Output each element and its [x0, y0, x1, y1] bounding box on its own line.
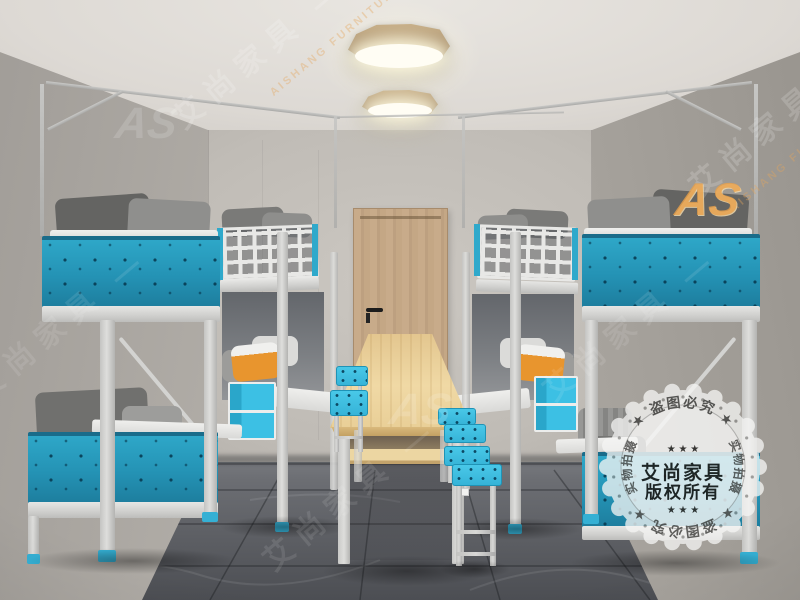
bed-post [510, 232, 521, 528]
ceiling-light-large [348, 24, 450, 70]
bed-post [277, 232, 288, 526]
door-handle [366, 308, 383, 312]
stool-stretcher [456, 552, 496, 556]
canopy-post [334, 116, 337, 228]
stool-stretcher [334, 436, 363, 439]
stool-seat [452, 464, 502, 486]
bed-post [585, 320, 598, 518]
guardrail-lattice [477, 224, 577, 281]
stamp-copyright: 版权所有 [645, 482, 721, 502]
bed-foot-cap [202, 512, 218, 522]
door-groove [360, 216, 441, 219]
guardrail-accent [572, 228, 578, 280]
guardrail-accent [474, 224, 480, 276]
table-leg [338, 436, 350, 564]
stool-label [461, 488, 469, 496]
dormitory-render: 艾尚家具 — AISHANG FURNITURE 艾尚家具 — AISHANG … [0, 0, 800, 600]
bedside-cabinet [534, 376, 578, 432]
bunk-rail [582, 306, 760, 322]
stool-stretcher [456, 530, 496, 534]
stool-seat [444, 424, 486, 443]
stool-leg [334, 416, 339, 452]
bunk-rail [42, 306, 220, 322]
bed-post [204, 320, 217, 516]
guardrail-accent [312, 224, 318, 276]
bunk-rail [28, 502, 218, 518]
bed-shadow [570, 550, 780, 576]
canopy-post [462, 116, 465, 228]
lower-bunk-panel [28, 432, 218, 504]
canopy-post [754, 84, 758, 236]
stool-shadow [440, 560, 510, 578]
canopy-post [40, 84, 44, 236]
bed-foot-cap [583, 514, 599, 524]
pillow-orange [230, 342, 282, 383]
stool-seat [336, 366, 368, 386]
upper-bunk-panel [582, 234, 760, 308]
bed-post [100, 320, 115, 554]
stool-seat [444, 446, 490, 466]
under-table-shade [349, 464, 453, 560]
stamp-stars-bottom: ★ ★ ★ [667, 505, 699, 516]
stamp-stars-top: ★ ★ ★ [667, 444, 699, 455]
door-lock-plate [366, 313, 370, 323]
copyright-stamp: ★ 盗图必究 ★ ★ 盗图必究 ★ 实物拍摄 实物拍摄 ★ ★ ★ 艾尚家具 版… [598, 382, 768, 552]
upper-bunk-panel [42, 236, 220, 308]
stool-seat [438, 408, 476, 425]
stool-leg [358, 416, 363, 452]
light-diffuser [355, 44, 443, 68]
bed-shadow [452, 518, 582, 540]
bed-shadow [220, 516, 350, 538]
stamp-brand: 艾尚家具 [641, 461, 725, 484]
bed-shadow [28, 548, 238, 574]
stool-seat [330, 390, 368, 416]
guardrail-lattice [219, 224, 319, 281]
